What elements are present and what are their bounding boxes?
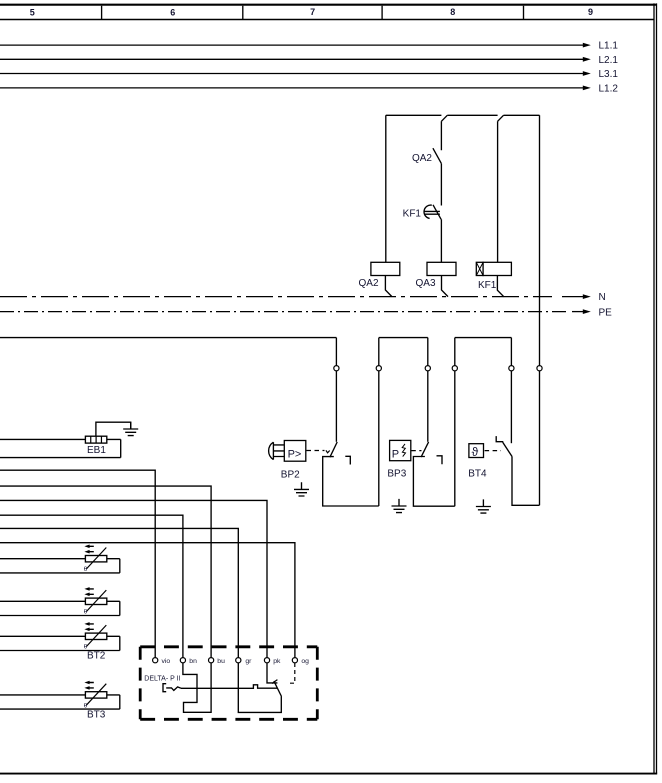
svg-text:9: 9 [588, 7, 593, 17]
svg-text:gr: gr [245, 658, 252, 665]
svg-text:P>: P> [288, 448, 302, 460]
svg-text:QA3: QA3 [416, 278, 436, 289]
svg-text:KF1: KF1 [478, 280, 497, 291]
svg-text:L3.1: L3.1 [599, 69, 619, 80]
svg-text:8: 8 [450, 7, 455, 17]
svg-text:BT3: BT3 [87, 709, 106, 720]
svg-text:bn: bn [189, 658, 197, 665]
svg-text:N: N [599, 292, 606, 303]
svg-text:QA2: QA2 [412, 153, 432, 164]
svg-text:BP3: BP3 [387, 469, 406, 480]
svg-text:PE: PE [599, 307, 613, 318]
svg-text:KF1: KF1 [403, 209, 422, 220]
svg-text:bu: bu [217, 658, 225, 665]
svg-text:L1.2: L1.2 [599, 84, 619, 95]
svg-text:pk: pk [273, 658, 281, 665]
svg-text:BT4: BT4 [468, 469, 487, 480]
svg-text:BT2: BT2 [87, 651, 106, 662]
svg-text:BP2: BP2 [281, 470, 300, 481]
svg-text:6: 6 [170, 7, 175, 17]
svg-text:P: P [392, 449, 399, 461]
svg-text:7: 7 [310, 7, 315, 17]
svg-text:QA2: QA2 [359, 278, 379, 289]
svg-text:L2.1: L2.1 [599, 55, 619, 66]
svg-text:5: 5 [30, 8, 35, 18]
svg-text:vio: vio [162, 658, 171, 665]
svg-text:DELTA- P II: DELTA- P II [144, 676, 180, 683]
svg-text:EB1: EB1 [87, 445, 106, 456]
svg-text:L1.1: L1.1 [599, 41, 619, 52]
svg-text:og: og [301, 658, 309, 665]
svg-text:ϑ: ϑ [472, 445, 479, 459]
